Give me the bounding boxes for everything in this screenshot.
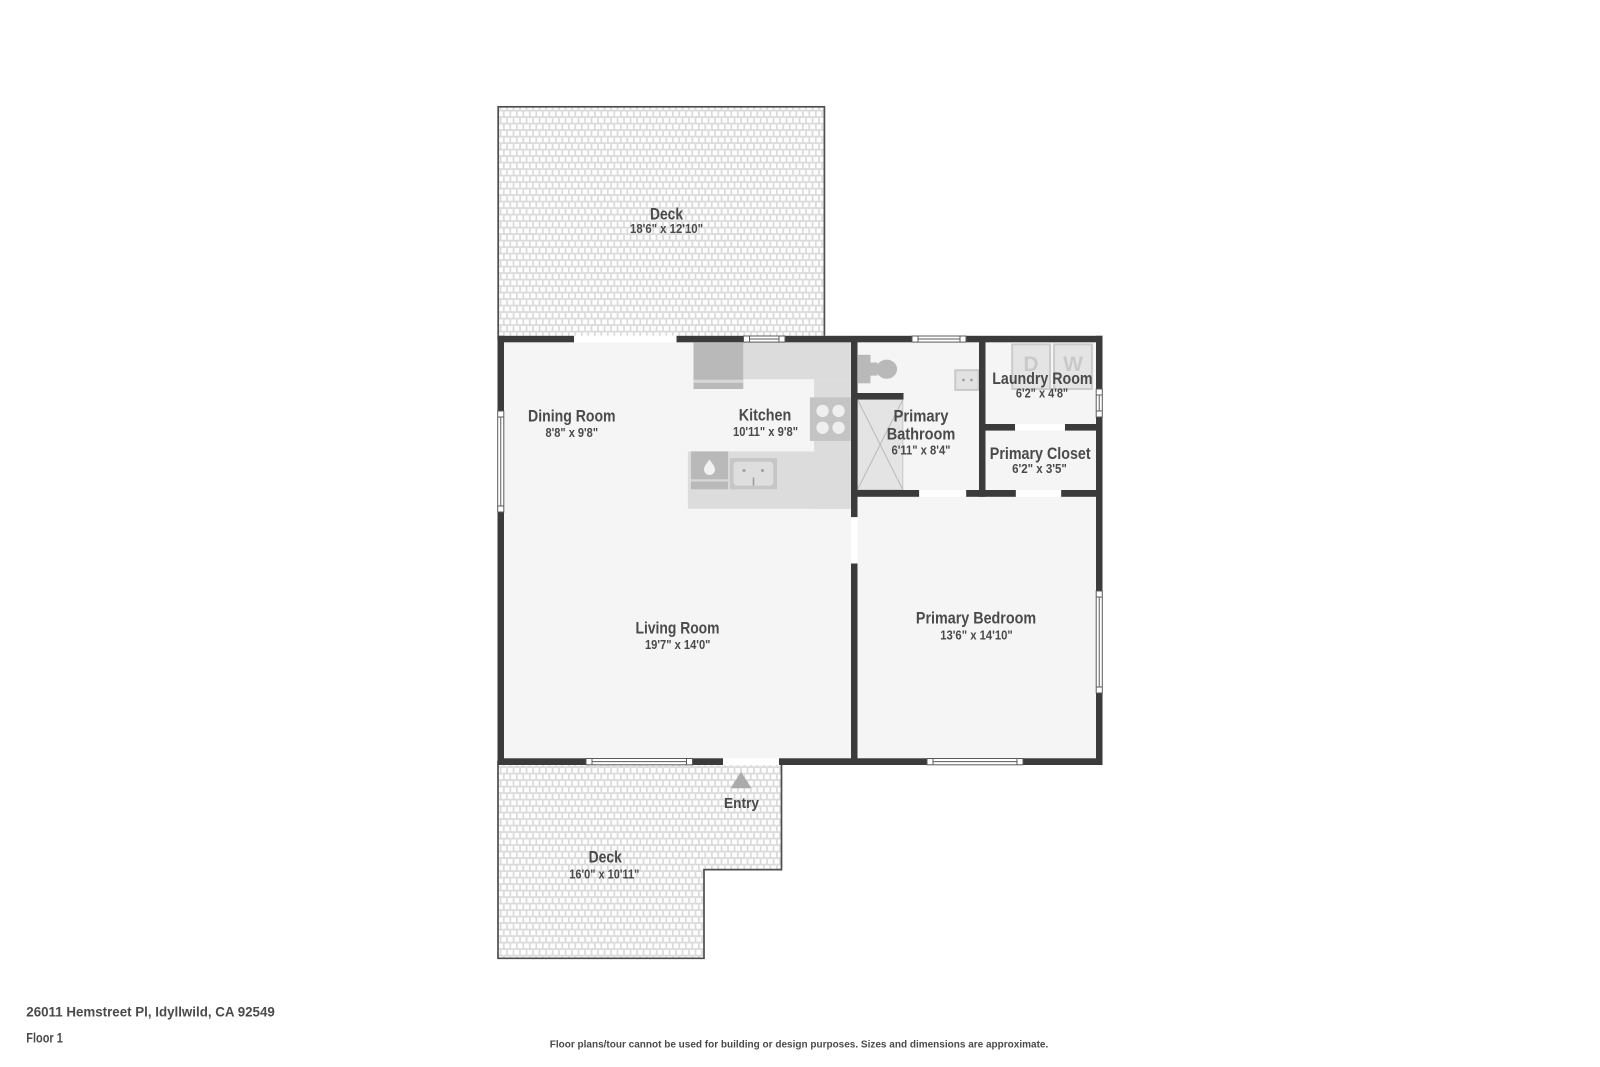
svg-text:26011 Hemstreet Pl, Idyllwild,: 26011 Hemstreet Pl, Idyllwild, CA 92549	[26, 1004, 274, 1019]
svg-text:Living Room: Living Room	[636, 620, 720, 638]
svg-text:16'0" x 10'11": 16'0" x 10'11"	[569, 868, 639, 882]
svg-text:6'2" x 4'8": 6'2" x 4'8"	[1016, 387, 1068, 401]
svg-text:18'6" x 12'10": 18'6" x 12'10"	[630, 222, 703, 236]
svg-text:Primary Bedroom: Primary Bedroom	[916, 610, 1036, 628]
svg-text:19'7" x 14'0": 19'7" x 14'0"	[645, 638, 711, 652]
svg-text:6'2" x 3'5": 6'2" x 3'5"	[1012, 462, 1067, 476]
svg-text:Laundry Room: Laundry Room	[992, 370, 1092, 388]
svg-text:13'6" x 14'10": 13'6" x 14'10"	[940, 629, 1013, 643]
svg-text:6'11" x 8'4": 6'11" x 8'4"	[892, 444, 951, 458]
svg-text:Bathroom: Bathroom	[887, 426, 956, 444]
svg-text:Dining Room: Dining Room	[528, 408, 616, 426]
svg-text:Floor 1: Floor 1	[26, 1031, 63, 1046]
svg-text:Deck: Deck	[650, 206, 684, 224]
svg-text:Kitchen: Kitchen	[739, 407, 792, 425]
svg-text:Entry: Entry	[724, 795, 759, 812]
svg-text:Deck: Deck	[589, 849, 623, 867]
svg-text:Primary: Primary	[894, 408, 949, 426]
svg-text:10'11" x 9'8": 10'11" x 9'8"	[733, 425, 798, 439]
svg-text:Floor plans/tour cannot be use: Floor plans/tour cannot be used for buil…	[550, 1039, 1049, 1050]
svg-text:8'8" x 9'8": 8'8" x 9'8"	[546, 426, 599, 440]
svg-text:Primary Closet: Primary Closet	[990, 445, 1091, 463]
